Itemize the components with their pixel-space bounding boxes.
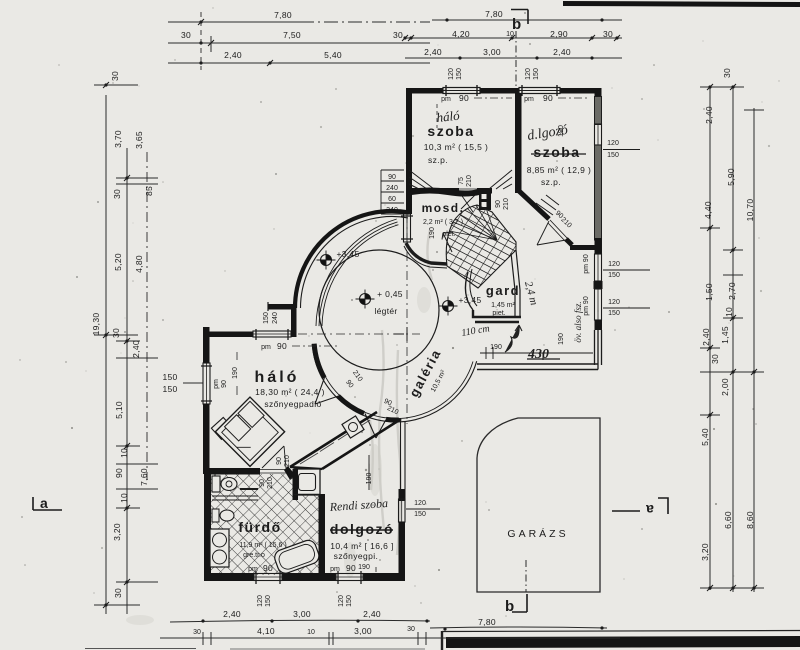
svg-text:120: 120 [607, 140, 619, 147]
svg-text:240: 240 [272, 312, 279, 324]
svg-text:190: 190 [558, 333, 565, 345]
svg-text:2,40: 2,40 [701, 328, 711, 346]
svg-text:30: 30 [603, 29, 613, 39]
svg-text:150: 150 [456, 68, 463, 80]
svg-text:210: 210 [466, 175, 473, 187]
svg-text:10: 10 [119, 448, 129, 458]
svg-text:7,80: 7,80 [485, 9, 503, 19]
svg-text:pm: pm [524, 96, 534, 103]
svg-text:gard: gard [486, 283, 520, 298]
svg-text:4,20: 4,20 [452, 29, 470, 39]
svg-text:pm 90: pm 90 [583, 296, 590, 316]
svg-text:4,80: 4,80 [134, 255, 144, 273]
svg-text:90: 90 [276, 457, 283, 465]
svg-text:2,70: 2,70 [727, 282, 737, 300]
svg-text:10: 10 [119, 493, 129, 503]
svg-text:szőnyegpadló: szőnyegpadló [264, 399, 321, 409]
svg-text:1,45 m²: 1,45 m² [491, 302, 515, 309]
svg-text:90: 90 [259, 479, 266, 487]
svg-text:190: 190 [358, 564, 370, 571]
svg-text:210: 210 [284, 455, 291, 467]
svg-text:7,80: 7,80 [274, 10, 292, 20]
svg-text:3,00: 3,00 [293, 609, 311, 619]
svg-text:30: 30 [722, 68, 732, 78]
svg-text:30: 30 [112, 189, 122, 199]
svg-text:190: 190 [232, 367, 239, 379]
svg-text:5,20: 5,20 [113, 253, 123, 271]
svg-text:150: 150 [162, 372, 177, 382]
svg-text:150: 150 [533, 68, 540, 80]
svg-text:mosd.: mosd. [422, 201, 465, 215]
svg-text:90: 90 [263, 563, 273, 573]
svg-text:10: 10 [724, 307, 734, 317]
svg-text:75: 75 [458, 177, 465, 185]
svg-text:pm: pm [330, 566, 340, 573]
svg-text:3,70: 3,70 [113, 130, 123, 148]
svg-text:120: 120 [608, 261, 620, 268]
svg-text:90: 90 [346, 563, 356, 573]
svg-text:4,40: 4,40 [703, 201, 713, 219]
svg-text:pm: pm [441, 96, 451, 103]
svg-text:430: 430 [527, 347, 549, 362]
svg-text:30: 30 [113, 588, 123, 598]
svg-text:6,60: 6,60 [723, 511, 733, 529]
svg-text:190: 190 [558, 125, 565, 137]
svg-text:7,50: 7,50 [283, 30, 301, 40]
svg-text:19,30: 19,30 [91, 313, 101, 336]
svg-text:gre.tr.o: gre.tr.o [243, 552, 265, 559]
svg-text:210: 210 [503, 198, 510, 210]
svg-text:30: 30 [393, 30, 403, 40]
svg-text:120: 120 [525, 68, 532, 80]
svg-text:légtér: légtér [374, 306, 397, 316]
svg-text:3,20: 3,20 [112, 523, 122, 541]
svg-text:2,40: 2,40 [704, 106, 714, 124]
svg-text:2,40: 2,40 [223, 609, 241, 619]
svg-text:2,40: 2,40 [131, 340, 141, 358]
svg-text:90: 90 [543, 93, 553, 103]
svg-text:190: 190 [490, 344, 502, 351]
svg-text:b: b [512, 16, 521, 33]
svg-text:3,20: 3,20 [700, 543, 710, 561]
svg-text:150: 150 [607, 152, 619, 159]
svg-text:3,00: 3,00 [354, 626, 372, 636]
svg-text:5,40: 5,40 [324, 50, 342, 60]
svg-text:+3,45: +3,45 [336, 249, 359, 259]
svg-text:+3,45: +3,45 [458, 295, 481, 305]
svg-text:90: 90 [114, 468, 124, 478]
svg-text:piet.: piet. [492, 310, 505, 317]
svg-text:240: 240 [386, 185, 398, 192]
svg-text:30: 30 [407, 626, 415, 633]
svg-text:2,00: 2,00 [720, 378, 730, 396]
svg-text:5,90: 5,90 [726, 168, 736, 186]
svg-text:1,50: 1,50 [704, 283, 714, 301]
svg-text:10: 10 [307, 629, 315, 636]
svg-text:18,30 m² ( 24,4 ): 18,30 m² ( 24,4 ) [255, 387, 325, 397]
svg-text:150: 150 [608, 310, 620, 317]
svg-text:szőnyegpi.: szőnyegpi. [334, 551, 379, 561]
svg-text:90: 90 [388, 174, 396, 181]
svg-text:a: a [40, 495, 48, 511]
svg-text:190 —: 190 — [366, 464, 373, 485]
svg-text:5,40: 5,40 [700, 428, 710, 446]
svg-text:150: 150 [346, 595, 353, 607]
svg-text:dolgozó: dolgozó [330, 521, 394, 537]
svg-text:190: 190 [429, 227, 436, 239]
svg-text:10,4 m² [ 16,6 ]: 10,4 m² [ 16,6 ] [330, 541, 394, 551]
svg-text:fürdő: fürdő [238, 519, 281, 535]
svg-text:120: 120 [257, 595, 264, 607]
svg-text:7,80: 7,80 [478, 617, 496, 627]
svg-text:4,10: 4,10 [257, 626, 275, 636]
svg-text:90: 90 [459, 93, 469, 103]
svg-text:8,60: 8,60 [745, 511, 755, 529]
svg-text:90: 90 [221, 380, 228, 388]
svg-text:pm 90: pm 90 [583, 254, 590, 274]
svg-text:90: 90 [495, 200, 502, 208]
svg-text:pm: pm [248, 566, 258, 573]
svg-text:90: 90 [277, 341, 287, 351]
svg-text:3,65: 3,65 [134, 131, 144, 149]
svg-text:1,45: 1,45 [720, 326, 730, 344]
svg-text:sz.p.: sz.p. [541, 177, 561, 187]
svg-text:2,40: 2,40 [553, 47, 571, 57]
svg-text:sz.p.: sz.p. [428, 155, 448, 165]
svg-text:30: 30 [710, 354, 720, 364]
svg-text:pm: pm [261, 344, 271, 351]
svg-text:30: 30 [111, 328, 121, 338]
svg-text:10,3 m² ( 15,5 ): 10,3 m² ( 15,5 ) [424, 142, 489, 152]
svg-text:GARÁZS: GARÁZS [507, 527, 568, 540]
svg-text:5,10: 5,10 [114, 401, 124, 419]
svg-text:150: 150 [608, 272, 620, 279]
svg-text:szoba: szoba [533, 144, 580, 160]
svg-text:30: 30 [193, 629, 201, 636]
svg-text:150: 150 [263, 312, 270, 324]
svg-text:3,00: 3,00 [483, 47, 501, 57]
svg-text:háló: háló [255, 369, 300, 386]
svg-text:+ 0,45: + 0,45 [377, 289, 403, 299]
svg-text:szoba: szoba [427, 123, 474, 139]
svg-text:10,70: 10,70 [745, 199, 755, 222]
svg-text:150: 150 [414, 511, 426, 518]
svg-text:120: 120 [338, 595, 345, 607]
svg-text:150: 150 [162, 384, 177, 394]
svg-text:120: 120 [608, 299, 620, 306]
svg-text:2,40: 2,40 [363, 609, 381, 619]
svg-text:30: 30 [110, 71, 120, 81]
svg-text:2,40: 2,40 [224, 50, 242, 60]
svg-text:120: 120 [448, 68, 455, 80]
svg-text:60: 60 [388, 196, 396, 203]
svg-text:pm: pm [213, 379, 220, 389]
svg-text:öv. also fsz.: öv. also fsz. [573, 301, 583, 342]
svg-text:120: 120 [414, 500, 426, 507]
svg-text:2,40: 2,40 [424, 47, 442, 57]
svg-text:150: 150 [265, 595, 272, 607]
svg-text:2,90: 2,90 [550, 29, 568, 39]
svg-text:85: 85 [144, 186, 154, 196]
svg-text:7,60: 7,60 [139, 468, 149, 486]
svg-text:a: a [646, 502, 654, 518]
svg-text:11,9 m² ( 15,6 ): 11,9 m² ( 15,6 ) [239, 542, 286, 549]
svg-text:30: 30 [181, 30, 191, 40]
svg-text:210: 210 [267, 477, 274, 489]
svg-text:8,85 m² ( 12,9 ): 8,85 m² ( 12,9 ) [527, 165, 592, 175]
